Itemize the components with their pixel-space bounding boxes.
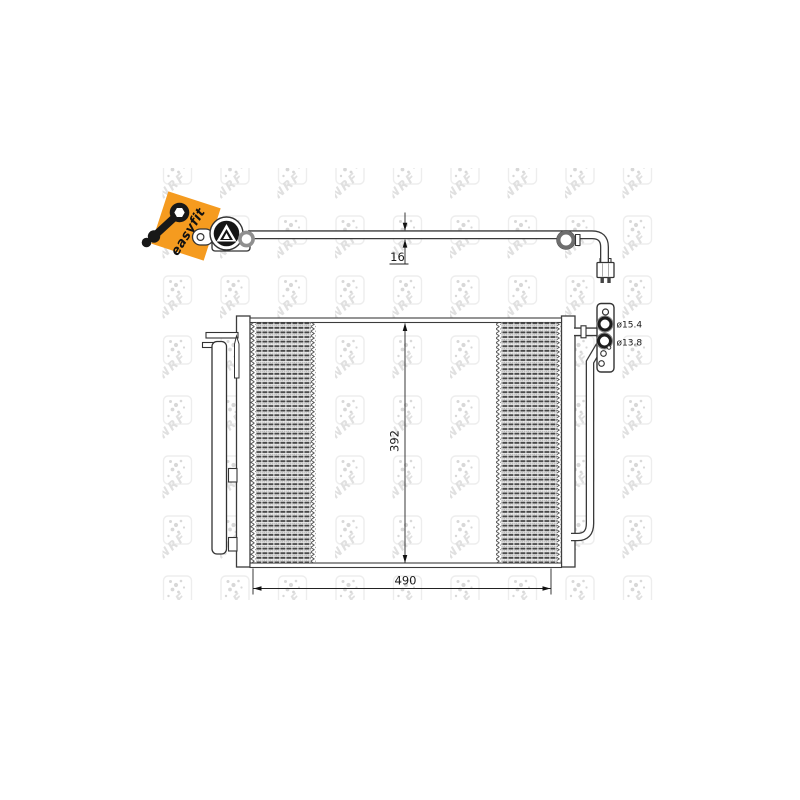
mounting-arm <box>206 333 238 339</box>
product-technical-drawing: NRF easyfit <box>0 0 800 800</box>
port-top-label: ø15.4 <box>617 321 643 331</box>
core-fins-left <box>251 323 317 564</box>
condenser-diagram: NRF easyfit <box>0 0 800 800</box>
dim-16-label: 16 <box>390 250 405 264</box>
o-ring-left <box>240 232 253 245</box>
port-bottom-label: ø13.8 <box>617 339 643 349</box>
core-fins-right <box>496 323 562 564</box>
right-tank <box>562 316 576 567</box>
warning-triangle-icon <box>210 217 243 250</box>
port-15-4 <box>599 318 611 330</box>
receiver-drier <box>212 342 227 555</box>
spigot-pin <box>235 336 240 378</box>
dim-490-label: 490 <box>395 574 417 588</box>
port-13-8 <box>599 335 611 347</box>
dim-392-label: 392 <box>388 430 402 452</box>
mounting-plate <box>597 304 615 373</box>
o-ring-right <box>559 233 574 248</box>
